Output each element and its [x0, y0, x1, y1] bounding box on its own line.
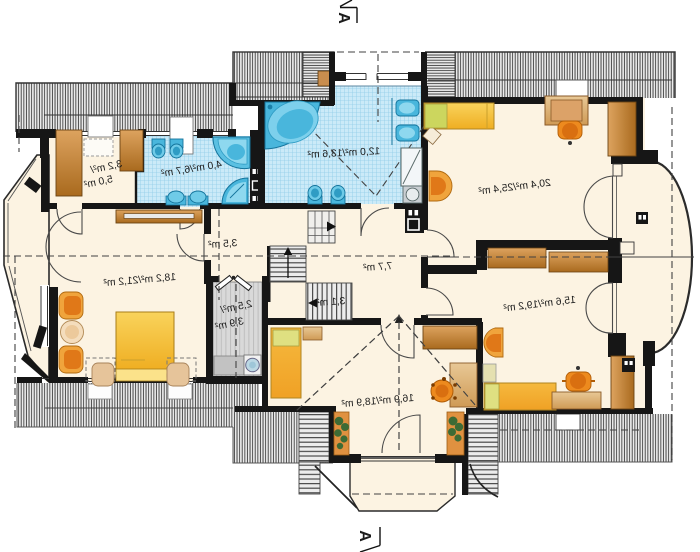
svg-text:3,5 m²: 3,5 m² [207, 238, 237, 251]
svg-text:3,1 m²: 3,1 m² [315, 296, 345, 309]
svg-text:7,7 m²: 7,7 m² [362, 261, 392, 274]
svg-text:A: A [335, 12, 352, 24]
svg-text:A: A [356, 530, 373, 542]
